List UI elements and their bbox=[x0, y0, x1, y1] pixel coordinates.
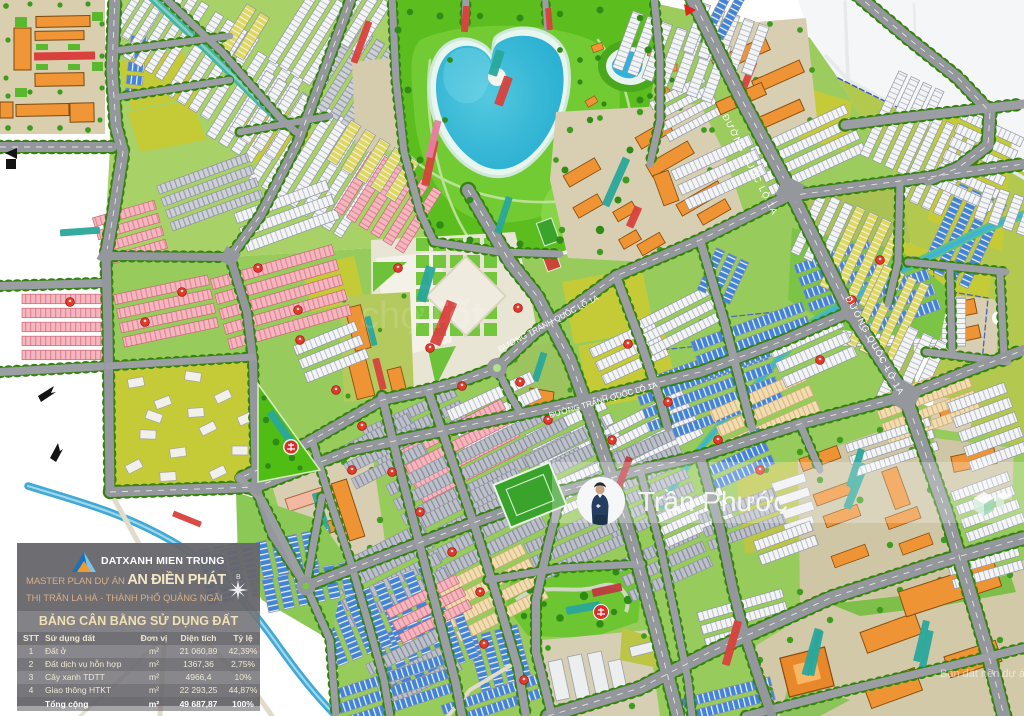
svg-text:B: B bbox=[236, 574, 241, 581]
